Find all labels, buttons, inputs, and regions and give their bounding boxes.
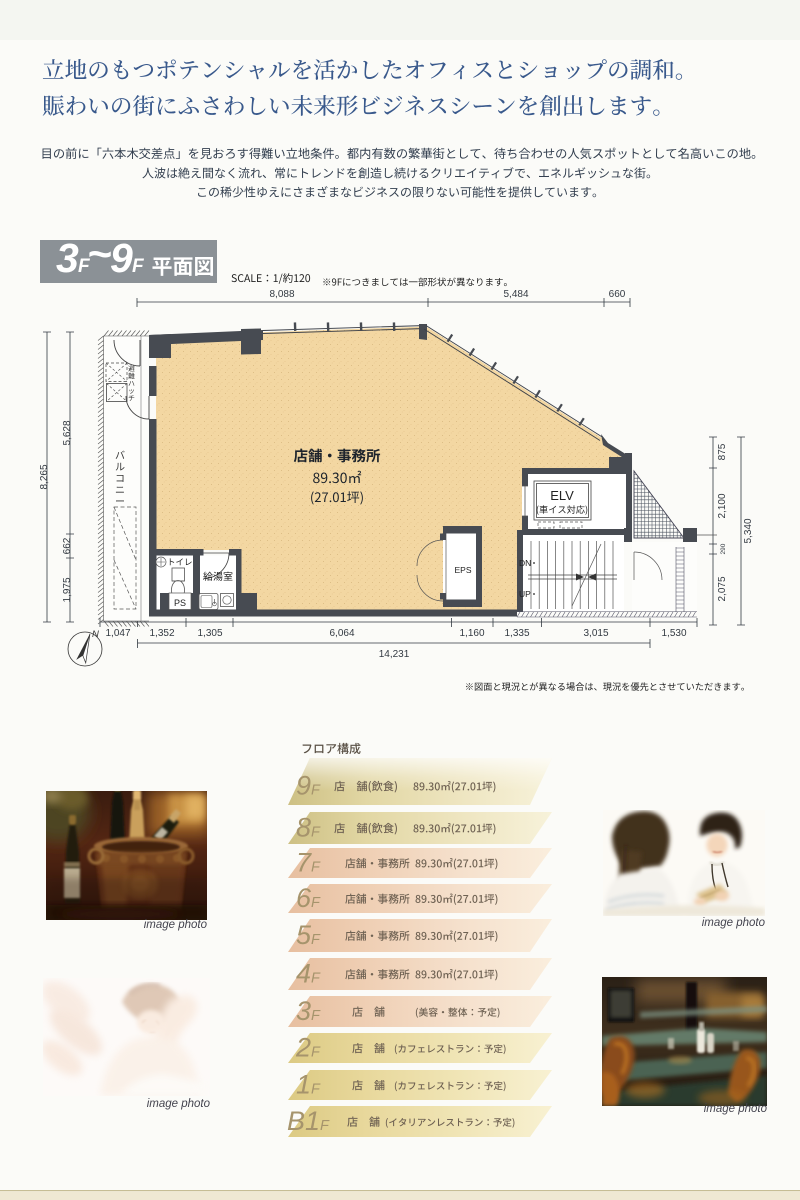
svg-text:3: 3 — [56, 235, 79, 281]
svg-text:UP: UP — [519, 589, 531, 599]
svg-text:3,015: 3,015 — [583, 628, 608, 639]
svg-text:290: 290 — [720, 543, 727, 554]
svg-text:875: 875 — [717, 443, 728, 460]
svg-text:1,530: 1,530 — [661, 628, 686, 639]
svg-text:5,340: 5,340 — [743, 518, 754, 543]
svg-text:EPS: EPS — [454, 565, 471, 575]
svg-text:8,088: 8,088 — [269, 289, 294, 300]
svg-text:F: F — [132, 256, 145, 277]
svg-text:1,047: 1,047 — [105, 628, 130, 639]
svg-text:5,484: 5,484 — [503, 289, 528, 300]
svg-text:image photo: image photo — [147, 1098, 211, 1110]
svg-text:662: 662 — [62, 537, 73, 554]
svg-text:DN: DN — [519, 558, 531, 568]
svg-text:9: 9 — [110, 235, 133, 281]
svg-text:1,160: 1,160 — [459, 628, 484, 639]
svg-text:image photo: image photo — [702, 917, 766, 929]
svg-text:image photo: image photo — [704, 1103, 768, 1115]
svg-text:1,352: 1,352 — [149, 628, 174, 639]
svg-text:ELV: ELV — [550, 488, 574, 503]
svg-text:14,231: 14,231 — [379, 649, 410, 660]
svg-text:6,064: 6,064 — [329, 628, 354, 639]
svg-text:1,305: 1,305 — [197, 628, 222, 639]
svg-text:1,975: 1,975 — [62, 577, 73, 602]
svg-text:image photo: image photo — [144, 919, 208, 931]
svg-text:2,075: 2,075 — [717, 576, 728, 601]
svg-text:N: N — [92, 629, 99, 640]
svg-text:~: ~ — [87, 230, 112, 277]
svg-text:660: 660 — [609, 289, 626, 300]
svg-text:1,335: 1,335 — [504, 628, 529, 639]
svg-text:PS: PS — [174, 598, 186, 608]
svg-text:8,265: 8,265 — [39, 464, 50, 489]
svg-text:2,100: 2,100 — [717, 493, 728, 518]
svg-text:5,628: 5,628 — [62, 420, 73, 445]
